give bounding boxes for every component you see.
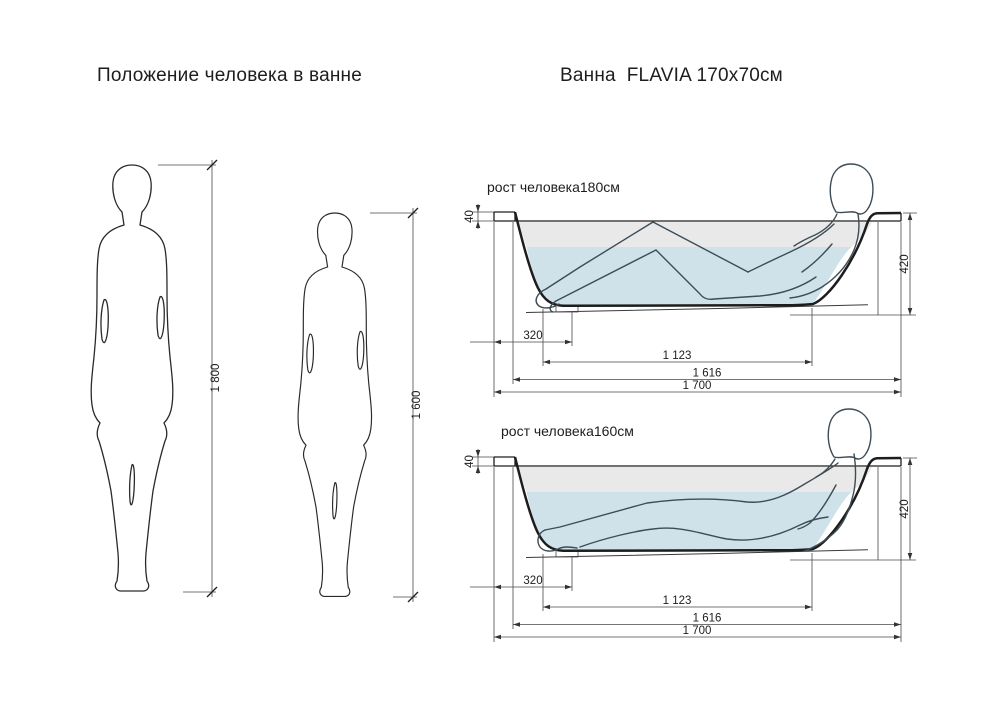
dim-1700-label: 1 700 (683, 380, 712, 392)
dim-1123-label: 1 123 (663, 595, 692, 607)
dim-40-label: 40 (464, 210, 476, 223)
dim-320-label: 320 (523, 575, 542, 587)
bathtub-section-160: рост человека160см 40 420 320 1 123 1 61… (460, 405, 940, 650)
bathtub-section-180: рост человека180см 40 420 320 1 123 1 61… (460, 160, 940, 405)
bather-180-head (830, 164, 873, 214)
dim-1700-label: 1 700 (683, 625, 712, 637)
drawing-canvas: Положение человека в ванне Ванна FLAVIA … (0, 0, 1000, 707)
figure-180-silhouette (91, 165, 173, 591)
dim-420-label: 420 (899, 254, 911, 273)
figure-160-height-label: 1 600 (411, 391, 423, 420)
left-panel-title: Положение человека в ванне (97, 65, 362, 87)
dim-40-label: 40 (464, 455, 476, 468)
bather-160-head (828, 409, 871, 459)
figure-160-silhouette (298, 213, 371, 596)
dim-320-label: 320 (523, 330, 542, 342)
dim-420-label: 420 (899, 499, 911, 518)
dim-1616-label: 1 616 (693, 613, 722, 625)
dim-1616-label: 1 616 (693, 368, 722, 380)
human-height-diagram: 1 800 1 600 (60, 150, 440, 620)
tub-160-caption: рост человека160см (501, 423, 634, 439)
figure-180-height-label: 1 800 (210, 364, 222, 393)
dim-1123-label: 1 123 (663, 350, 692, 362)
tub-180-caption: рост человека180см (487, 179, 620, 195)
right-panel-title: Ванна FLAVIA 170x70см (560, 65, 783, 87)
